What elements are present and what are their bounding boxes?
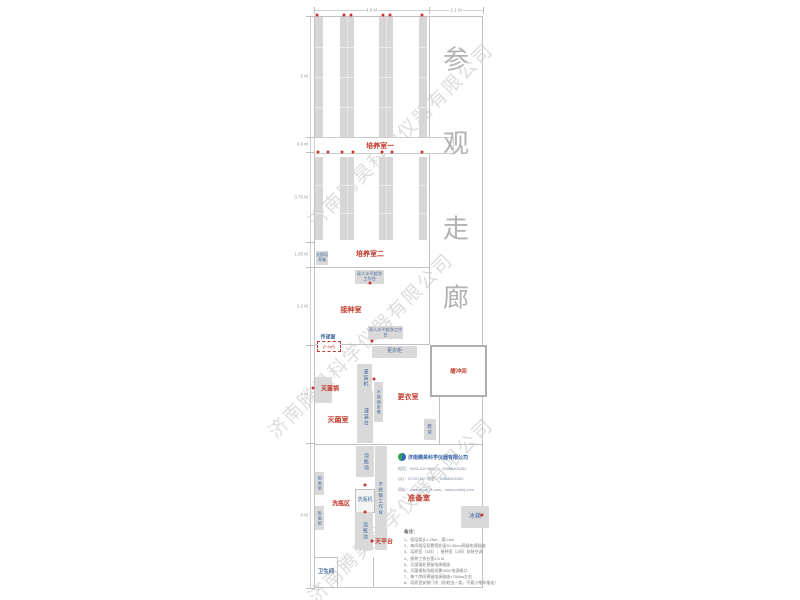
- company-contact-line: 电话：0531-82749617，15866401052: [398, 466, 498, 472]
- rack-shelf-line: [419, 107, 427, 108]
- company-contact-lines: 电话：0531-82749617，15866401052QQ：57437467 …: [398, 466, 498, 493]
- dimension-chain-left: [310, 16, 311, 588]
- equip-dry-rack-1: 晾瓶架: [315, 472, 324, 495]
- outlet-dot: [371, 340, 374, 343]
- equip-clean-bench-2-label: 双人水平超净工作台: [368, 328, 403, 338]
- label-balance-table: 天平台: [375, 537, 393, 546]
- outlet-dot: [382, 14, 385, 17]
- outlet-dot: [421, 14, 424, 17]
- rack-shelf-line: [419, 185, 427, 186]
- dimension-tick: [429, 7, 430, 14]
- rack-shelf-line: [315, 107, 323, 108]
- rack-center-line: [347, 17, 348, 137]
- equip-shoe-rack: 鞋架: [424, 419, 436, 440]
- dimension-tick: [306, 443, 315, 444]
- rack-shelf-line: [315, 213, 323, 214]
- outlet-dot: [371, 540, 374, 543]
- notes-title: 备注：: [404, 529, 499, 535]
- equip-dry-rack-1-label: 晾瓶架: [317, 476, 322, 491]
- company-header: 济南腾昊科学仪器有限公司: [398, 453, 498, 461]
- company-contact-line: 网址：www.sype17.com，www.cmhkj.com: [398, 487, 498, 493]
- corridor-char: 参: [443, 40, 469, 77]
- rack-center-line: [386, 157, 387, 240]
- equip-dry-rack-2: 晾瓶架: [315, 506, 324, 530]
- watermark-text: 济南腾昊科学仪器有限公司: [301, 36, 498, 233]
- equip-steel-bench-label: 不锈钢条凳: [376, 390, 381, 415]
- dimension-tick: [306, 267, 315, 268]
- outlet-dot: [381, 151, 384, 154]
- dimension-label: 4 M: [299, 392, 309, 397]
- equip-soak-pool-2-label: 泡瓶池: [361, 522, 367, 540]
- floor-plan-canvas: 济南腾昊科学仪器有限公司济南腾昊科学仪器有限公司济南腾昊科学仪器有限公司 4.8…: [0, 0, 800, 600]
- outlet-dot: [364, 511, 367, 514]
- equip-fridge-label: 冰箱: [469, 514, 481, 521]
- dimension-label: 1.05 M: [293, 252, 309, 257]
- dimension-label: 0.6 M: [296, 142, 309, 147]
- rack-shelf-line: [419, 47, 427, 48]
- dimension-label: 5 M: [299, 74, 309, 79]
- notes-list: 1、组培架长1.25m，宽0.5m2、每间组培室靠墙处留30-35cm预留电源插…: [404, 537, 499, 587]
- wall-dressing-right: [439, 393, 440, 445]
- rack-shelf-line: [315, 47, 323, 48]
- equip-light-incubator-label: 光照培养箱: [316, 253, 328, 262]
- wall-prep-top: [314, 444, 483, 445]
- equip-steel-worktable: 不锈钢工作台: [375, 446, 387, 550]
- culture-rack: [419, 157, 427, 240]
- outlet-dot: [327, 151, 330, 154]
- equip-filling-machine-label: 灌装机: [362, 369, 368, 387]
- outlet-dot: [312, 387, 315, 390]
- culture-rack: [315, 17, 323, 137]
- pass-window-area: (0.4㎡): [317, 341, 341, 352]
- equip-clean-bench-1-label: 双人水平超净工作台: [355, 272, 384, 282]
- culture-rack: [379, 17, 393, 137]
- wall-toilet-top: [314, 557, 338, 558]
- rack-shelf-line: [315, 77, 323, 78]
- corridor-char: 观: [443, 124, 469, 161]
- rack-center-line: [386, 17, 387, 137]
- equip-bottle-washer: 洗瓶机: [355, 489, 375, 513]
- dimension-label: 6 M: [299, 513, 309, 518]
- outlet-dot: [391, 151, 394, 154]
- rack-center-line: [347, 157, 348, 240]
- dimension-label: 2.1 M: [449, 8, 462, 13]
- culture-rack: [340, 157, 354, 240]
- outlet-dot: [343, 14, 346, 17]
- equip-bottle-washer-label: 洗瓶机: [357, 498, 372, 504]
- label-autoclave: 灭菌锅: [321, 384, 339, 393]
- company-logo-icon: [398, 453, 406, 461]
- room-label-prep: 准备室: [408, 493, 431, 504]
- outlet-dot: [341, 151, 344, 154]
- equip-steel-worktable-label: 不锈钢工作台: [378, 482, 383, 515]
- equip-shoe-rack-label: 鞋架: [427, 424, 432, 435]
- dimension-label: 4.8 M: [365, 8, 378, 13]
- culture-rack: [419, 17, 427, 137]
- equip-wardrobe: 更衣柜: [372, 346, 417, 358]
- outlet-dot: [364, 484, 367, 487]
- room-label-sterilization: 灭菌室: [328, 415, 349, 425]
- outlet-dot: [421, 151, 424, 154]
- wall-toilet-right: [337, 557, 338, 588]
- equip-wardrobe-label: 更衣柜: [387, 349, 402, 355]
- equip-dry-rack-2-label: 晾瓶架: [317, 511, 322, 526]
- room-label-washing-area: 洗瓶区: [332, 499, 350, 508]
- corridor-char: 廊: [443, 278, 469, 315]
- outlet-dot: [481, 514, 484, 517]
- equip-soak-pool-1: 泡瓶池: [356, 446, 374, 477]
- outlet-dot: [352, 151, 355, 154]
- equip-filling-machine: 灌装机: [357, 364, 372, 391]
- room-label-buffer: 缓冲间: [450, 367, 467, 375]
- corridor-char: 走: [443, 209, 469, 246]
- wall-culture2-bottom: [314, 267, 430, 268]
- equip-fridge: 冰箱: [461, 506, 489, 528]
- equip-clean-bench-2: 双人水平超净工作台: [368, 326, 403, 339]
- culture-rack: [340, 17, 354, 137]
- dimension-tick: [306, 588, 315, 589]
- equip-filling-table-label: 灌装台: [362, 408, 368, 426]
- outlet-dot: [369, 282, 372, 285]
- room-label-culture-2: 培养室二: [356, 249, 384, 259]
- room-label-toilet: 卫生间: [318, 567, 335, 575]
- dimension-label: 3.75 M: [293, 195, 309, 200]
- outlet-dot: [389, 14, 392, 17]
- rack-shelf-line: [419, 77, 427, 78]
- dimension-label: 3.2 M: [296, 304, 309, 309]
- culture-rack: [379, 157, 393, 240]
- equip-filling-table: 灌装台: [357, 391, 373, 443]
- room-band-culture-1: 培养室一: [314, 137, 454, 154]
- room-buffer: 缓冲间: [430, 345, 487, 397]
- dimension-tick: [306, 242, 315, 243]
- culture-rack: [315, 157, 323, 240]
- note-item: 8、培养室安装门帘（防蚊虫一类，不要小推车推走）: [404, 580, 499, 586]
- label-pass-window: 传递窗: [320, 334, 335, 341]
- dimension-tick: [314, 7, 315, 14]
- equip-soak-pool-1-label: 泡瓶池: [362, 453, 368, 471]
- equip-steel-bench: 不锈钢条凳: [374, 382, 383, 422]
- room-label-dressing: 更衣室: [398, 392, 419, 402]
- rack-shelf-line: [315, 185, 323, 186]
- company-info-block: 济南腾昊科学仪器有限公司 电话：0531-82749617，1586640105…: [398, 453, 498, 493]
- room-label-inoculation: 接种室: [341, 305, 362, 315]
- dimension-tick: [483, 7, 484, 14]
- wall-outer-bottom: [314, 587, 483, 588]
- outlet-dot: [316, 14, 319, 17]
- wall-outer-right: [482, 16, 483, 588]
- dimension-tick: [306, 345, 315, 346]
- wall-balance-side: [373, 557, 374, 588]
- outlet-dot: [350, 14, 353, 17]
- company-contact-line: QQ：57437467 微信：15866401052: [398, 476, 498, 482]
- notes-block: 备注： 1、组培架长1.25m，宽0.5m2、每间组培室靠墙处留30-35cm预…: [404, 529, 499, 587]
- outlet-dot: [317, 151, 320, 154]
- equip-soak-pool-2: 泡瓶池: [355, 512, 373, 550]
- dimension-tick: [306, 16, 315, 17]
- equip-light-incubator: 光照培养箱: [316, 251, 328, 265]
- wall-corridor: [429, 16, 430, 345]
- company-name: 济南腾昊科学仪器有限公司: [408, 454, 468, 461]
- outlet-dot: [373, 378, 376, 381]
- room-label-culture-1: 培养室一: [366, 141, 394, 151]
- rack-shelf-line: [419, 213, 427, 214]
